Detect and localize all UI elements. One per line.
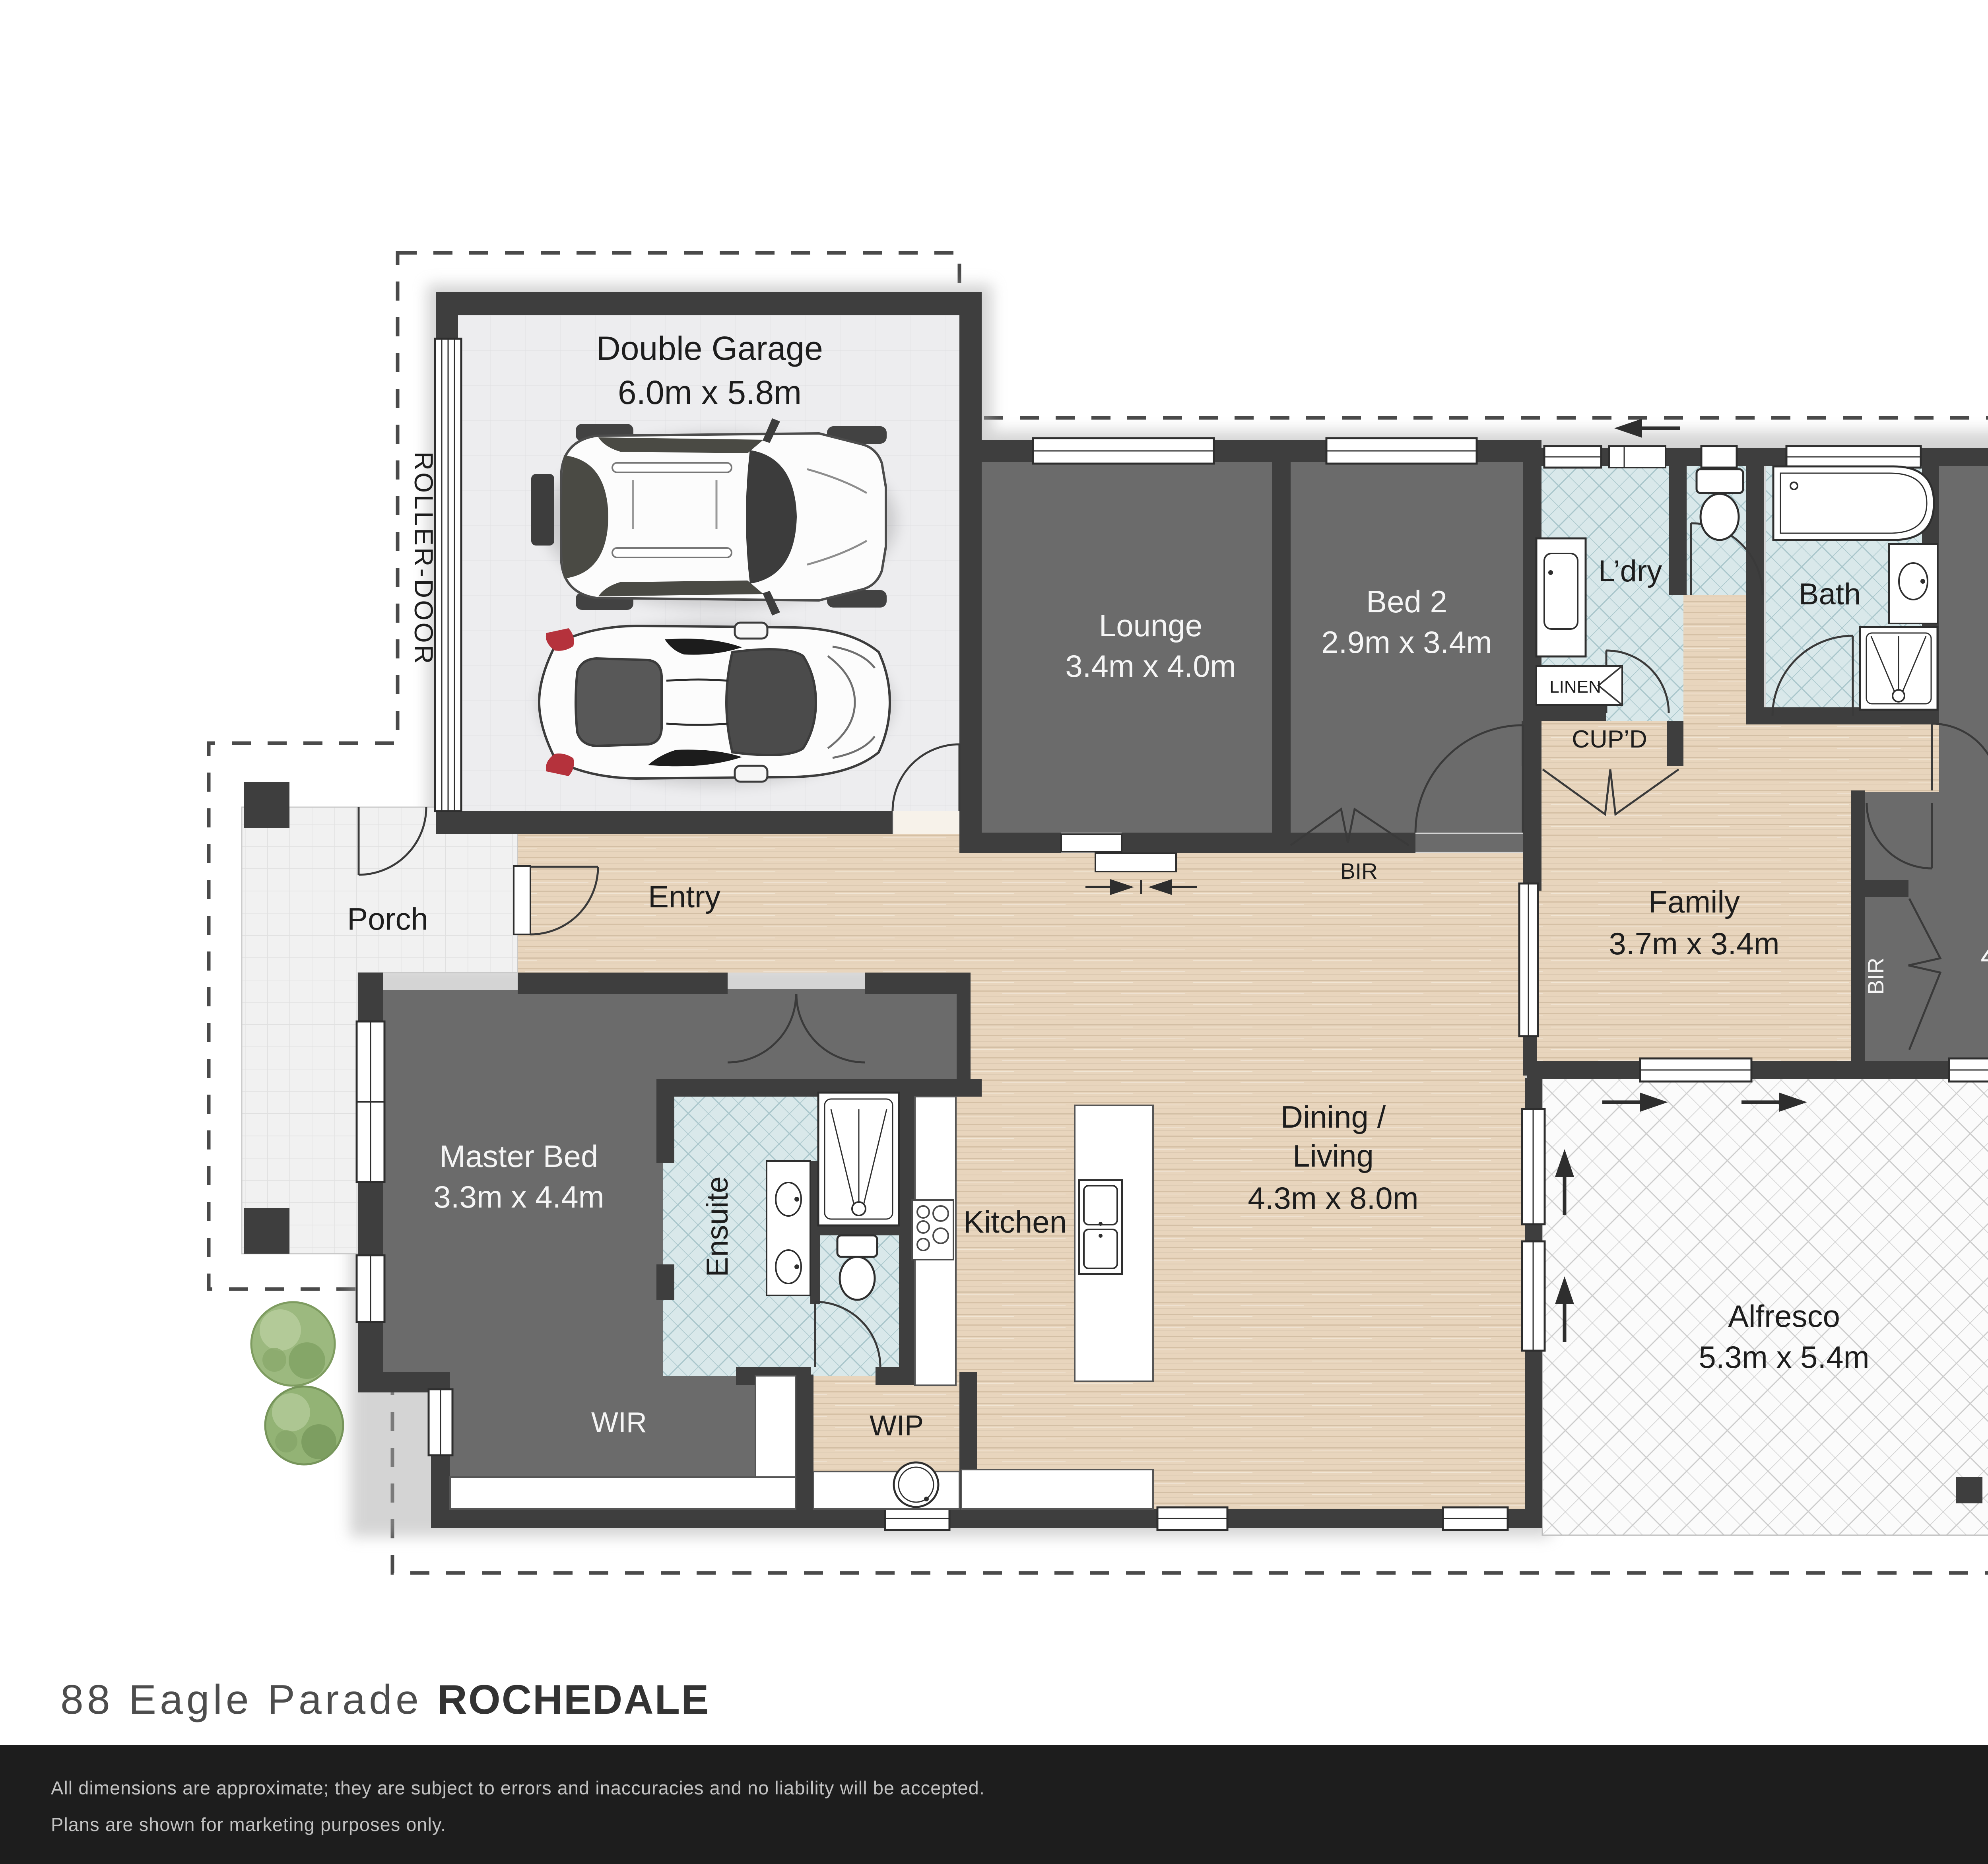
svg-text:Entry: Entry [648,879,720,914]
svg-text:BIR: BIR [1340,858,1377,883]
svg-text:Living: Living [1293,1138,1374,1173]
svg-text:3.4m x 4.0m: 3.4m x 4.0m [1065,649,1236,683]
svg-text:Ensuite: Ensuite [701,1176,734,1277]
svg-text:4.3m x 8.0m: 4.3m x 8.0m [1248,1181,1418,1215]
svg-text:3.3m x 4.4m: 3.3m x 4.4m [433,1179,604,1214]
svg-text:LINEN: LINEN [1549,677,1601,697]
svg-text:Plans are shown for marketing: Plans are shown for marketing purposes o… [51,1814,446,1835]
svg-text:All dimensions are approximate: All dimensions are approximate; they are… [51,1777,985,1798]
svg-text:2.9m x 3.4m: 2.9m x 3.4m [1321,625,1492,660]
svg-text:WIP: WIP [870,1410,924,1442]
svg-text:BIR: BIR [1863,957,1888,994]
svg-text:Alfresco: Alfresco [1728,1299,1840,1334]
svg-text:Lounge: Lounge [1099,608,1202,643]
svg-text:Bed 2: Bed 2 [1366,584,1447,619]
svg-text:Bath: Bath [1799,577,1861,611]
svg-text:ROLLER-DOOR: ROLLER-DOOR [409,451,439,666]
svg-text:4.0m x 3.0m: 4.0m x 3.0m [1980,938,1988,973]
svg-text:Porch: Porch [347,901,428,936]
svg-text:Master Bed: Master Bed [440,1139,598,1174]
svg-text:Dining /: Dining / [1281,1099,1386,1134]
svg-text:3.7m x 3.4m: 3.7m x 3.4m [1609,926,1779,961]
svg-text:Double Garage: Double Garage [596,330,823,367]
svg-text:Family: Family [1648,884,1740,919]
svg-text:88 Eagle Parade ROCHEDALE: 88 Eagle Parade ROCHEDALE [60,1677,710,1723]
svg-text:L’dry: L’dry [1598,554,1662,588]
svg-text:5.3m x 5.4m: 5.3m x 5.4m [1699,1340,1869,1375]
svg-text:CUP’D: CUP’D [1572,726,1647,753]
svg-text:Kitchen: Kitchen [963,1204,1067,1239]
svg-text:WIR: WIR [591,1407,647,1439]
svg-text:6.0m x 5.8m: 6.0m x 5.8m [618,374,802,411]
